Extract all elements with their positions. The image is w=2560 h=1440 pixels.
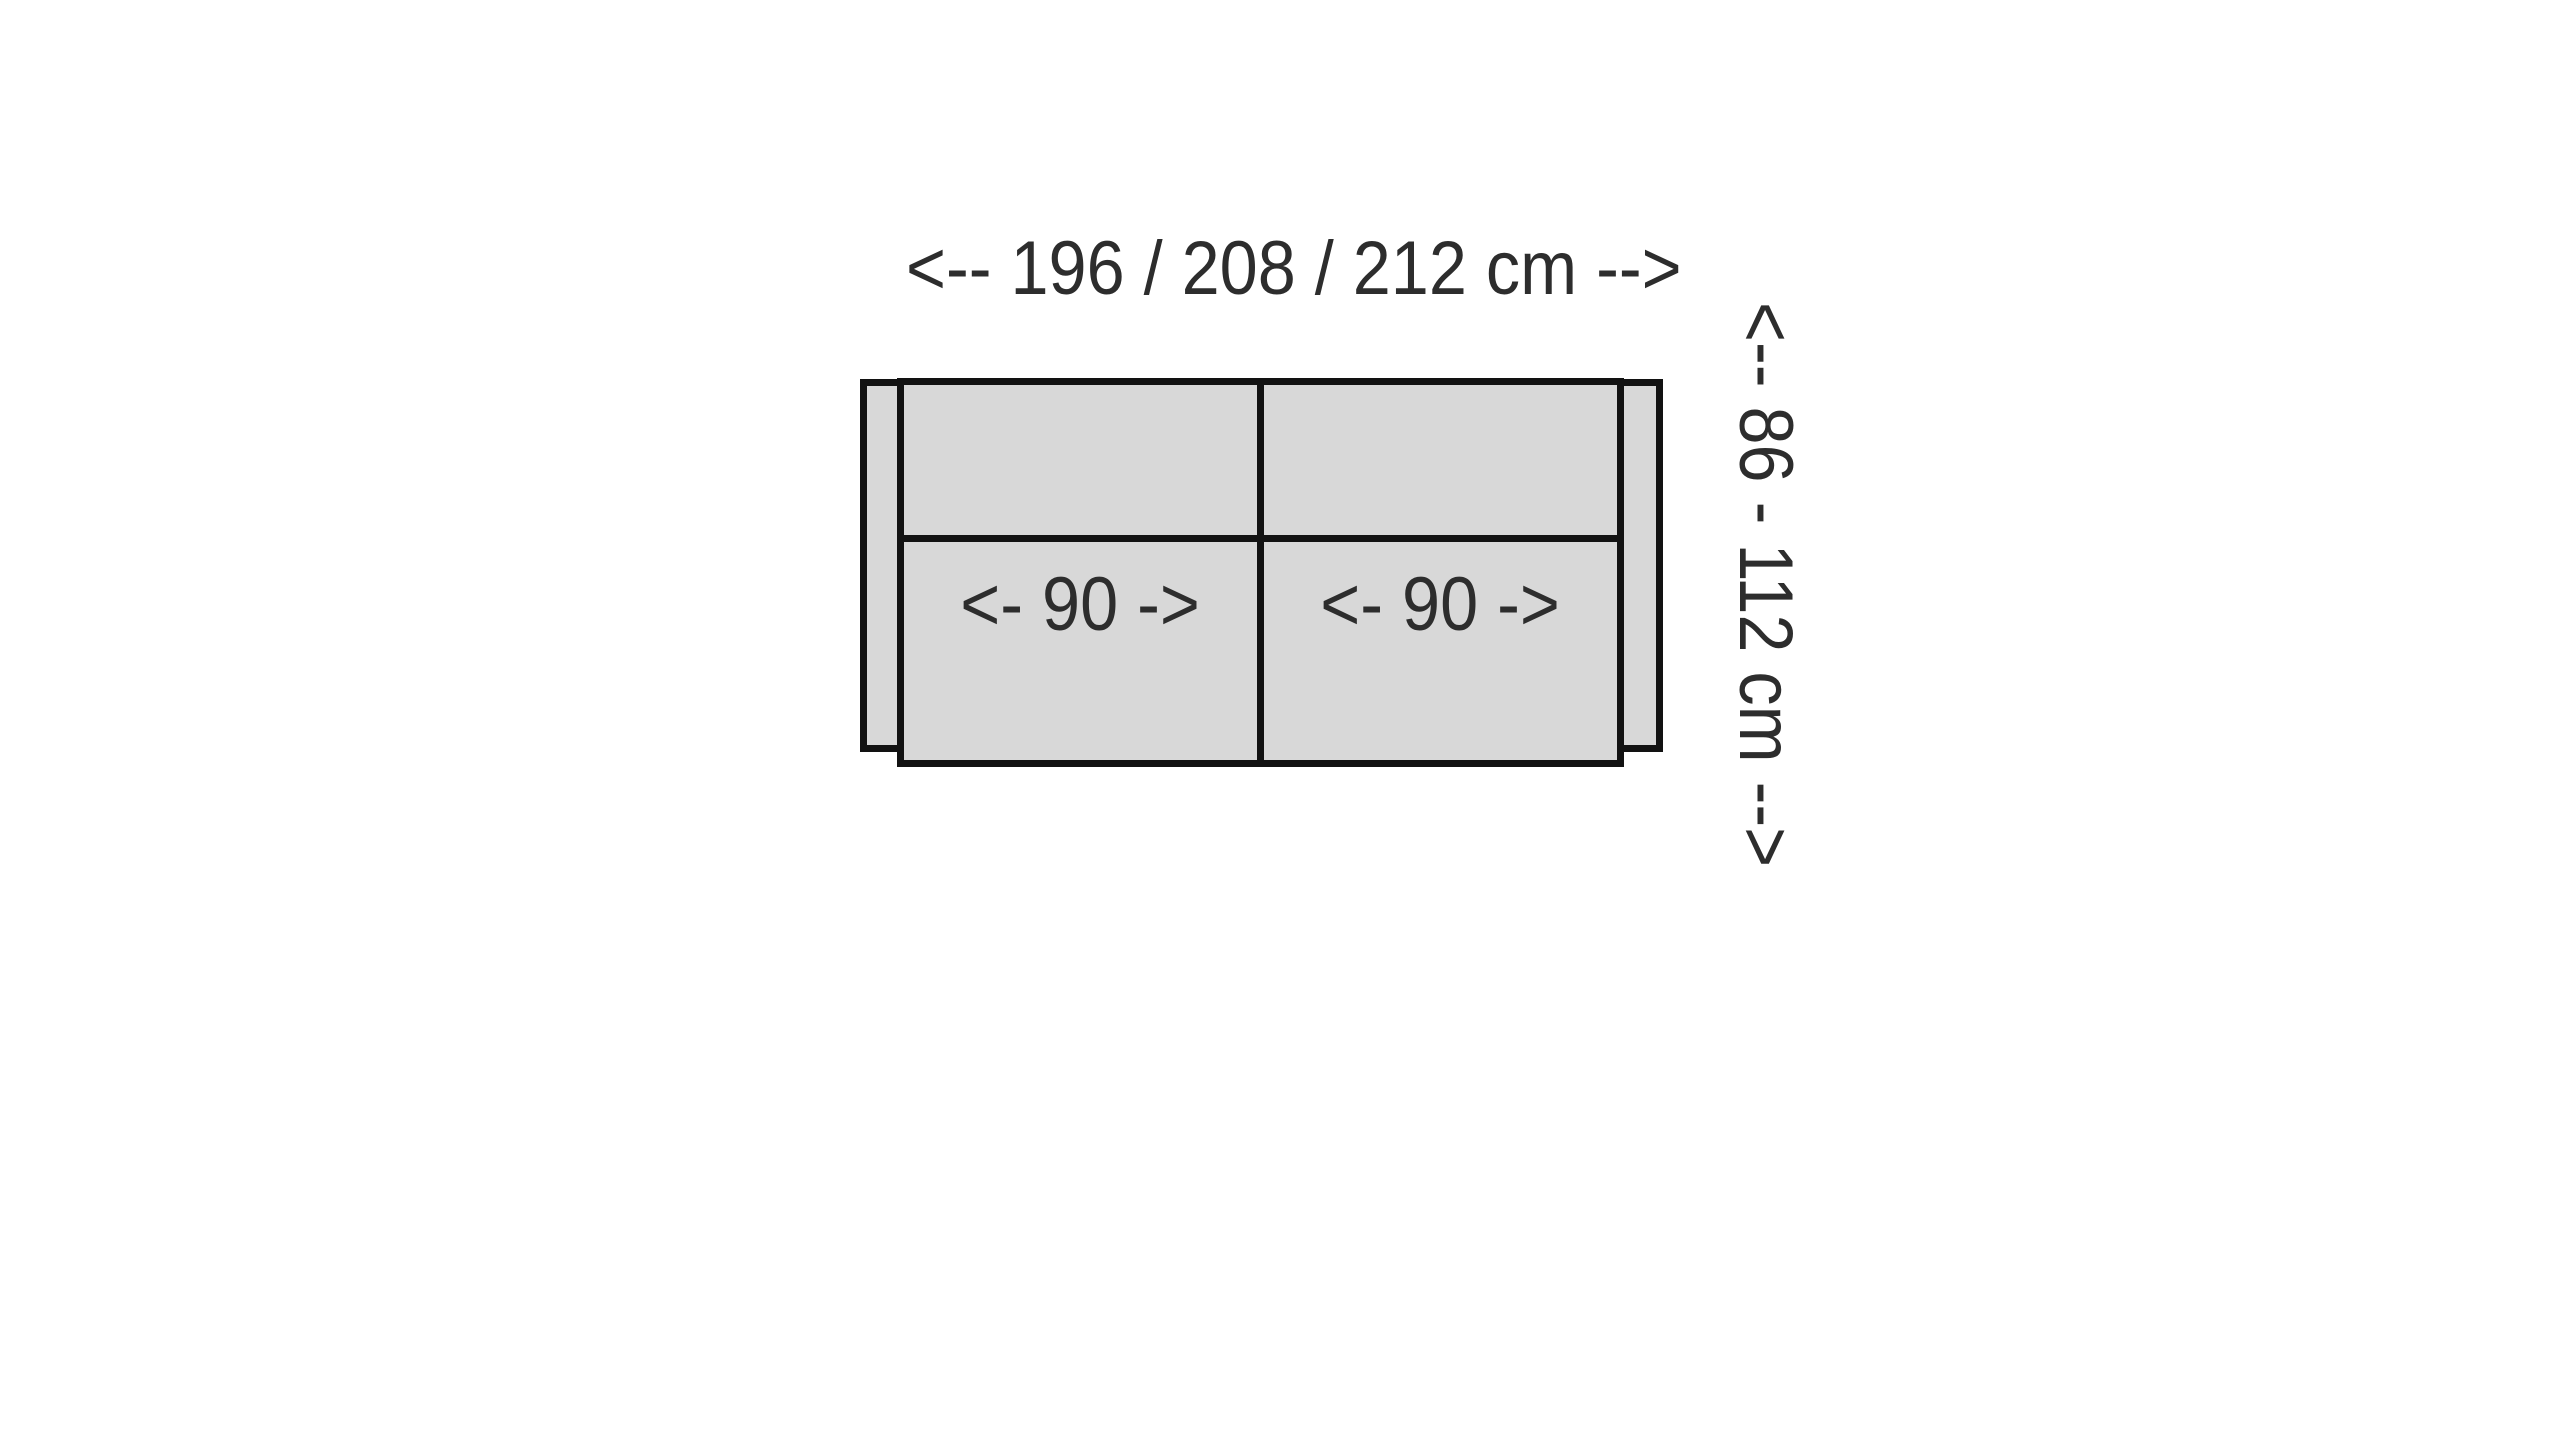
left-seat-width-label: <- 90 -> [961,567,1201,643]
sofa-dimension-diagram: <-- 196 / 208 / 212 cm --> <- 90 -> <- 9… [0,0,2560,1440]
depth-dimension-label: <-- 86 - 112 cm --> [1727,302,1803,842]
right-seat: <- 90 -> [1264,542,1617,760]
width-dimension-label: <-- 196 / 208 / 212 cm --> [906,231,1626,307]
right-seat-width-label: <- 90 -> [1321,567,1561,643]
left-backrest [904,385,1257,535]
left-seat: <- 90 -> [904,542,1257,760]
right-backrest [1264,385,1617,535]
sofa-body: <- 90 -> <- 90 -> [897,378,1624,767]
